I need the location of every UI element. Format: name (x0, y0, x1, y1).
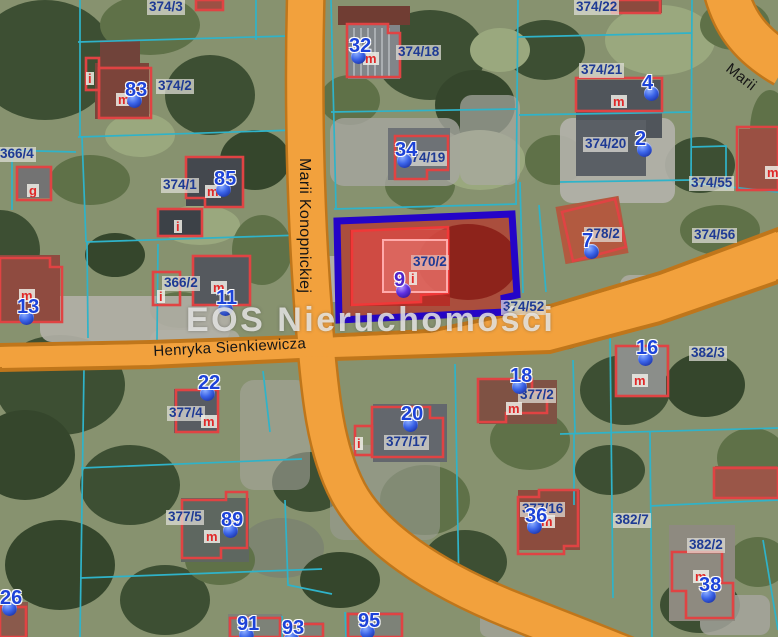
map-marker[interactable]: 7 (582, 231, 608, 259)
marker-number: 11 (216, 288, 242, 308)
map-marker[interactable]: 22 (198, 373, 224, 401)
building-tag: m (765, 166, 778, 179)
marker-number: 83 (125, 80, 151, 100)
parcel-label: 377/4 (167, 406, 205, 421)
map-marker[interactable]: 20 (401, 404, 427, 432)
parcel-label: 374/1 (161, 178, 199, 193)
labels-layer: 374/3374/2366/4374/1374/18374/19374/2237… (0, 0, 778, 637)
building-tag: i (157, 290, 165, 303)
map-marker[interactable]: 9 (394, 270, 420, 298)
satellite-map[interactable]: 374/3374/2366/4374/1374/18374/19374/2237… (0, 0, 778, 637)
map-marker[interactable]: 93 (282, 618, 308, 637)
parcel-label: 382/2 (687, 538, 725, 553)
parcel-label: 374/52 (501, 300, 546, 315)
marker-number: 38 (699, 575, 725, 595)
map-marker[interactable]: 13 (17, 297, 43, 325)
map-marker[interactable]: 11 (216, 288, 242, 316)
map-marker[interactable]: 38 (699, 575, 725, 603)
parcel-label: 370/2 (411, 255, 449, 270)
marker-number: 26 (0, 588, 26, 608)
map-marker[interactable]: 36 (525, 506, 551, 534)
street-label: Marii Konopnickiej (295, 158, 313, 293)
marker-number: 85 (214, 169, 240, 189)
map-marker[interactable]: 83 (125, 80, 151, 108)
parcel-label: 374/2 (156, 79, 194, 94)
parcel-label: 374/21 (579, 63, 624, 78)
parcel-label: 374/3 (147, 0, 185, 15)
building-tag: g (27, 184, 39, 197)
marker-number: 95 (358, 611, 384, 631)
marker-number: 93 (282, 618, 308, 637)
map-marker[interactable]: 34 (395, 140, 421, 168)
marker-number: 91 (237, 614, 263, 634)
marker-number: 89 (221, 510, 247, 530)
map-marker[interactable]: 16 (636, 338, 662, 366)
street-label: Henryka Sienkiewicza (153, 335, 306, 360)
parcel-label: 374/22 (574, 0, 619, 15)
map-marker[interactable]: 95 (358, 611, 384, 637)
marker-number: 13 (17, 297, 43, 317)
parcel-label: 377/5 (166, 510, 204, 525)
map-marker[interactable]: 4 (642, 73, 668, 101)
parcel-label: 366/4 (0, 147, 36, 162)
parcel-label: 366/2 (162, 276, 200, 291)
building-tag: i (174, 220, 182, 233)
building-tag: m (611, 95, 627, 108)
building-tag: m (506, 402, 522, 415)
building-tag: m (201, 415, 217, 428)
marker-number: 18 (510, 366, 536, 386)
map-marker[interactable]: 91 (237, 614, 263, 637)
marker-number: 36 (525, 506, 551, 526)
street-label: Marii (723, 60, 760, 94)
map-marker[interactable]: 18 (510, 366, 536, 394)
building-tag: i (86, 72, 94, 85)
parcel-label: 374/55 (689, 176, 734, 191)
marker-number: 22 (198, 373, 224, 393)
parcel-label: 382/7 (613, 513, 651, 528)
building-tag: i (355, 437, 363, 450)
parcel-label: 374/20 (583, 137, 628, 152)
marker-number: 20 (401, 404, 427, 424)
parcel-label: 374/56 (692, 228, 737, 243)
map-marker[interactable]: 85 (214, 169, 240, 197)
map-marker[interactable]: 32 (349, 36, 375, 64)
marker-number: 32 (349, 36, 375, 56)
parcel-label: 377/17 (384, 435, 429, 450)
map-marker[interactable]: 2 (635, 129, 661, 157)
parcel-label: 382/3 (689, 346, 727, 361)
marker-number: 34 (395, 140, 421, 160)
map-marker[interactable]: 89 (221, 510, 247, 538)
map-marker[interactable]: 26 (0, 588, 26, 616)
building-tag: m (632, 374, 648, 387)
marker-number: 16 (636, 338, 662, 358)
building-tag: m (204, 530, 220, 543)
parcel-label: 374/18 (396, 45, 441, 60)
